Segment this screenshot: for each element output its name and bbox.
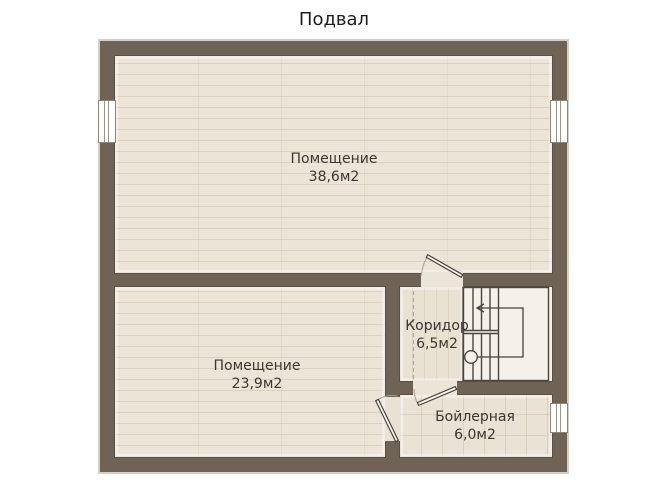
stairwell-floor xyxy=(463,287,552,381)
floor-plan-page: Подвал xyxy=(0,0,668,501)
room-239-area: 23,9м2 xyxy=(214,375,301,393)
window-symbol-boiler xyxy=(550,403,568,433)
boiler-room-label: Бойлерная 6,0м2 xyxy=(435,408,515,444)
corridor-area: 6,5м2 xyxy=(405,335,469,353)
corridor-label: Коридор 6,5м2 xyxy=(405,317,469,353)
corridor-name: Коридор xyxy=(405,317,469,335)
room-239-name: Помещение xyxy=(214,357,301,375)
door-opening-corridor-boiler xyxy=(413,381,457,395)
page-title: Подвал xyxy=(0,9,668,30)
boiler-room-area: 6,0м2 xyxy=(435,426,515,444)
door-opening-room239-boiler xyxy=(385,397,400,441)
door-opening-corridor-room38 xyxy=(421,273,463,287)
room-38-area: 38,6м2 xyxy=(291,168,378,186)
room-239-label: Помещение 23,9м2 xyxy=(214,357,301,393)
room-38-label: Помещение 38,6м2 xyxy=(291,150,378,186)
window-symbol-right xyxy=(550,100,568,143)
window-symbol-left xyxy=(98,100,116,143)
floor-plan: Помещение 38,6м2 Помещение 23,9м2 Коридо… xyxy=(100,41,567,472)
boiler-room-name: Бойлерная xyxy=(435,408,515,426)
room-38-name: Помещение xyxy=(291,150,378,168)
